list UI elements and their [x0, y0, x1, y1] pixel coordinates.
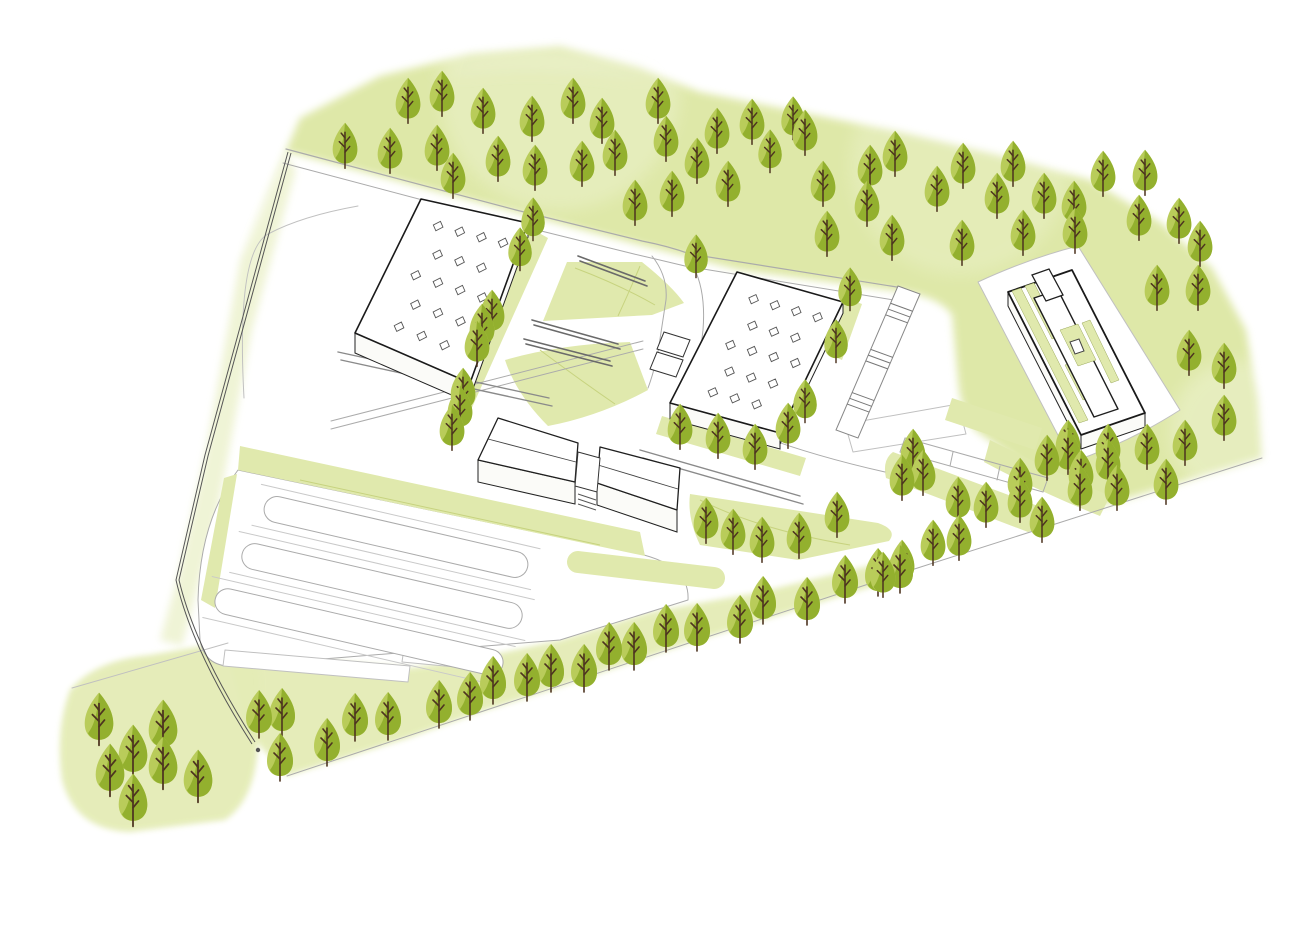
building-hall-left: [355, 199, 528, 403]
guardrail-end: [256, 748, 260, 752]
curb-line: [532, 320, 618, 344]
curb-line: [950, 452, 953, 466]
building-shed: [478, 418, 578, 504]
site-plan-page: [0, 0, 1310, 931]
tree: [1133, 150, 1158, 196]
tree: [1030, 497, 1055, 543]
lawn-patch: [505, 342, 648, 426]
lawn-patch: [543, 262, 684, 321]
site-plan-svg: [0, 0, 1310, 931]
building-shed: [597, 447, 680, 532]
connector-steps: [578, 494, 596, 500]
connector-steps: [578, 499, 596, 505]
building-hall-middle: [670, 272, 843, 449]
tree: [921, 520, 946, 566]
tree: [947, 515, 972, 561]
shed-connector: [575, 452, 600, 492]
connector-steps: [578, 504, 596, 510]
